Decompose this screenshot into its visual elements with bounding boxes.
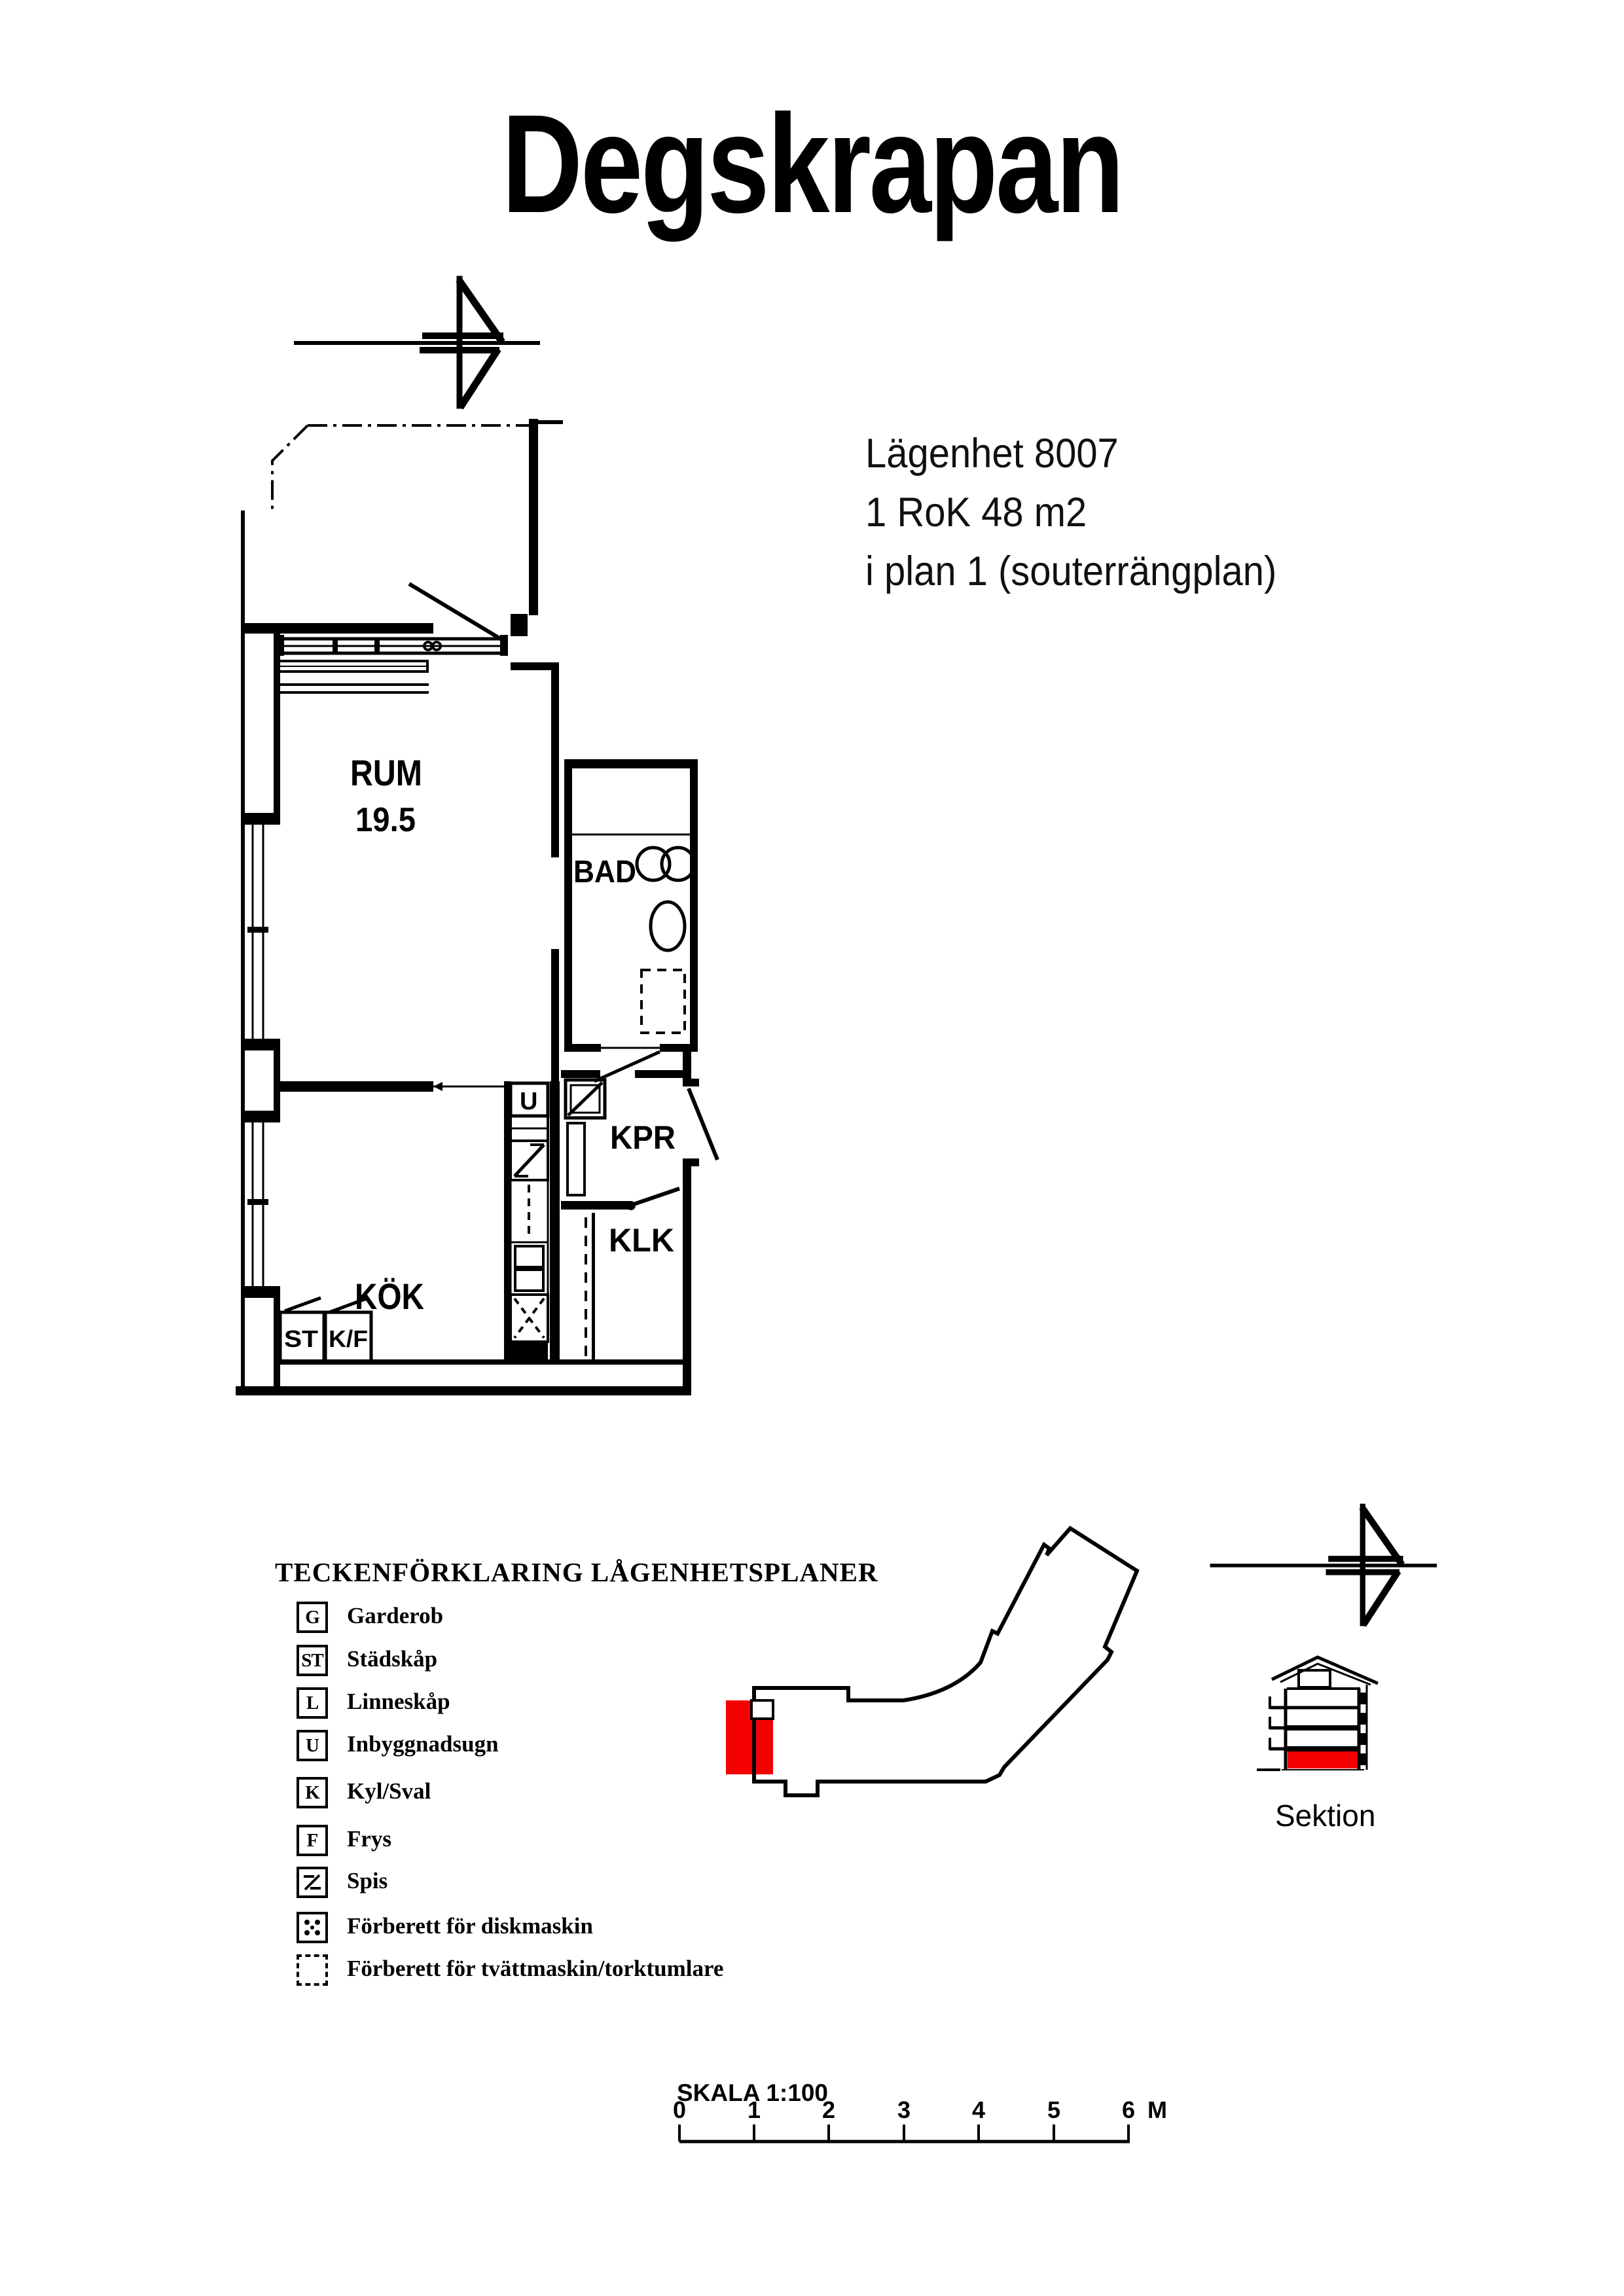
sink-icon [662,848,695,880]
outline-notch [751,1700,773,1719]
kitchen-fixtures [511,1083,548,1342]
doors [409,584,717,1210]
label-ugn: U [520,1088,537,1115]
toilet-icon [651,902,685,950]
spis-icon [297,1867,328,1898]
north-arrow-icon [288,267,543,418]
apartment-size: 1 RoK 48 m2 [865,483,1276,542]
kpr-closet-icon [566,1080,605,1356]
label-kok: KÖK [355,1276,424,1317]
north-arrow-icon [1204,1496,1440,1634]
page-title: Degskrapan [162,84,1462,245]
building-outline [754,1528,1137,1795]
scale-tick: 1 [748,2096,761,2123]
label-rum-area: 19.5 [355,801,416,839]
diskmaskin-icon [297,1912,328,1943]
tvattmaskin-icon [297,1954,328,1986]
letter-box-icon: G [297,1602,328,1633]
balconies [1270,1696,1286,1750]
label-bad: BAD [573,855,636,889]
section-label: Sektion [1275,1799,1375,1833]
letter-box-icon: ST [297,1645,328,1676]
letter-box-icon: K [297,1777,328,1808]
letter-box-icon: L [297,1687,328,1719]
letter-box-icon: F [297,1825,328,1856]
scale-tick: 2 [822,2096,835,2123]
room-labels: RUM 19.5 BAD KÖK KPR KLK U ST K/F [284,752,676,1352]
laundry-prep-icon [641,970,685,1033]
letter-box-icon: U [297,1730,328,1761]
label-kpr: KPR [610,1119,676,1156]
scale-tick: 6 [1122,2096,1135,2123]
label-klk: KLK [609,1222,674,1259]
attic-window [1299,1670,1330,1687]
section-highlight [1288,1751,1358,1768]
floor-plan: RUM 19.5 BAD KÖK KPR KLK U ST K/F [236,406,727,1414]
left-window-icon [247,825,268,1286]
scale-tick: 4 [972,2096,985,2123]
scale-tick: 0 [673,2096,686,2123]
section-drawing: Sektion [1241,1635,1418,1838]
apartment-info: Lägenhet 8007 1 RoK 48 m2 i plan 1 (sout… [865,424,1276,601]
window-icon [276,635,508,692]
scale-tick: 5 [1047,2096,1060,2123]
scale-bar: SKALA 1:100 0 1 2 3 4 5 6 M [668,2073,1185,2159]
label-st: ST [284,1325,318,1352]
klk-door-icon [630,1189,679,1206]
entrance-door-icon [689,1088,717,1160]
scale-unit: M [1147,2096,1167,2123]
apartment-floor: i plan 1 (souterrängplan) [865,542,1276,601]
terrace-boundary [272,425,529,511]
label-kf: K/F [329,1325,368,1352]
apartment-id: Lägenhet 8007 [865,424,1276,483]
scale-tick: 3 [897,2096,911,2123]
label-rum: RUM [350,752,422,793]
